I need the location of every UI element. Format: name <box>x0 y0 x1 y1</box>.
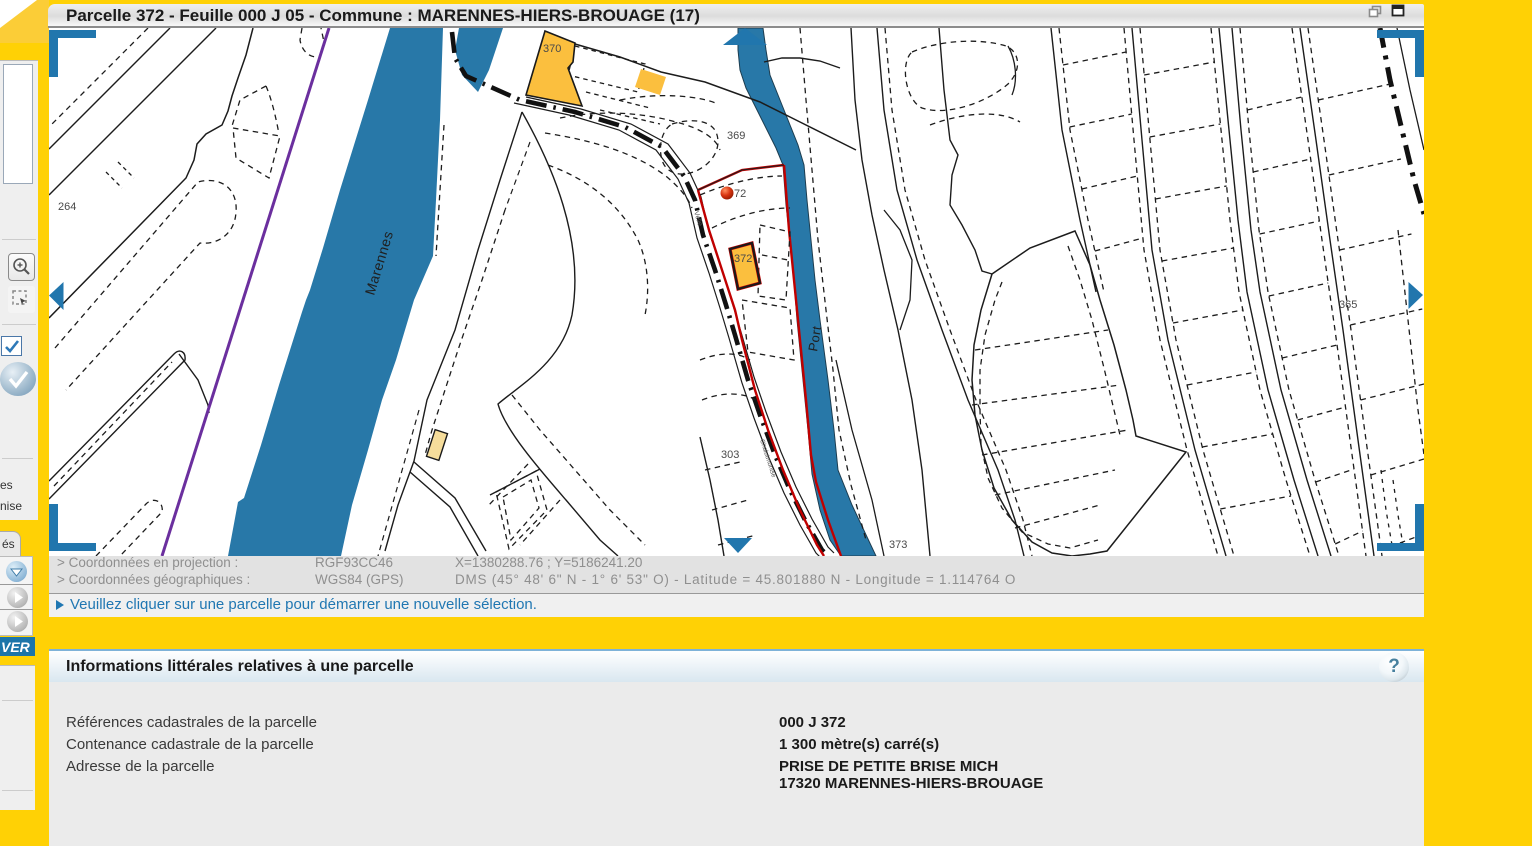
svg-text:372: 372 <box>734 253 752 265</box>
svg-text:264: 264 <box>58 201 76 213</box>
svg-text:303: 303 <box>721 449 739 461</box>
svg-text:373: 373 <box>889 539 907 551</box>
svg-text:365: 365 <box>1339 299 1357 311</box>
svg-text:369: 369 <box>727 130 745 142</box>
svg-text:370: 370 <box>543 43 561 55</box>
svg-text:72: 72 <box>734 188 746 200</box>
